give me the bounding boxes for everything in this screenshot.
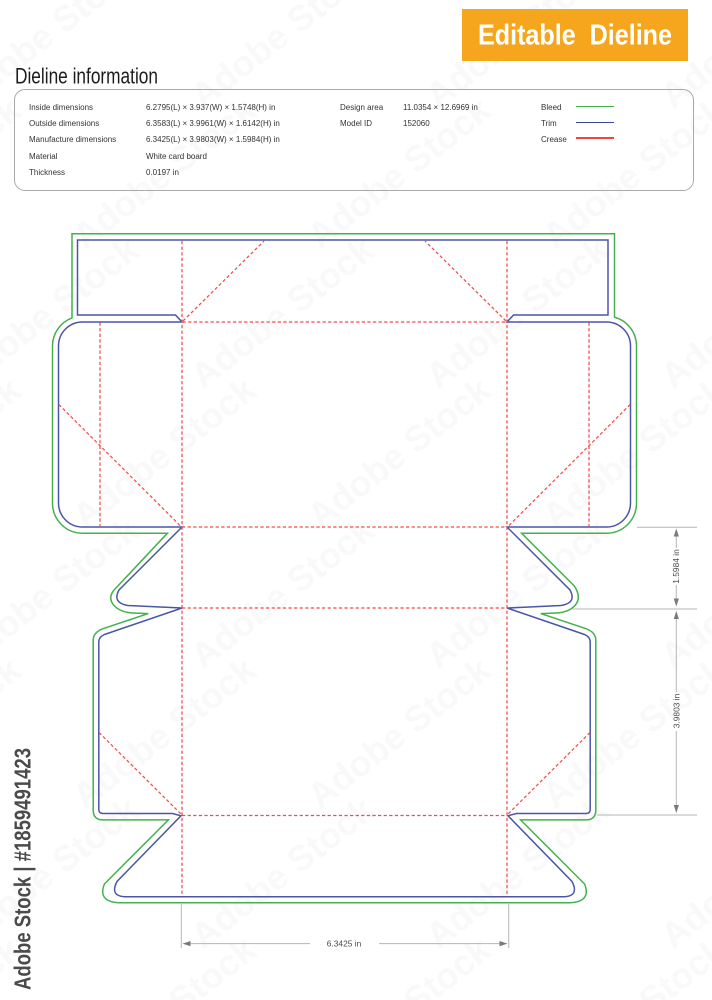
svg-text:3.9803 in: 3.9803 in — [672, 693, 682, 728]
svg-text:1.5984 in: 1.5984 in — [671, 549, 681, 584]
svg-text:Adobe Stock | #1859491423: Adobe Stock | #1859491423 — [10, 748, 36, 990]
svg-text:6.3425 in: 6.3425 in — [327, 939, 362, 949]
